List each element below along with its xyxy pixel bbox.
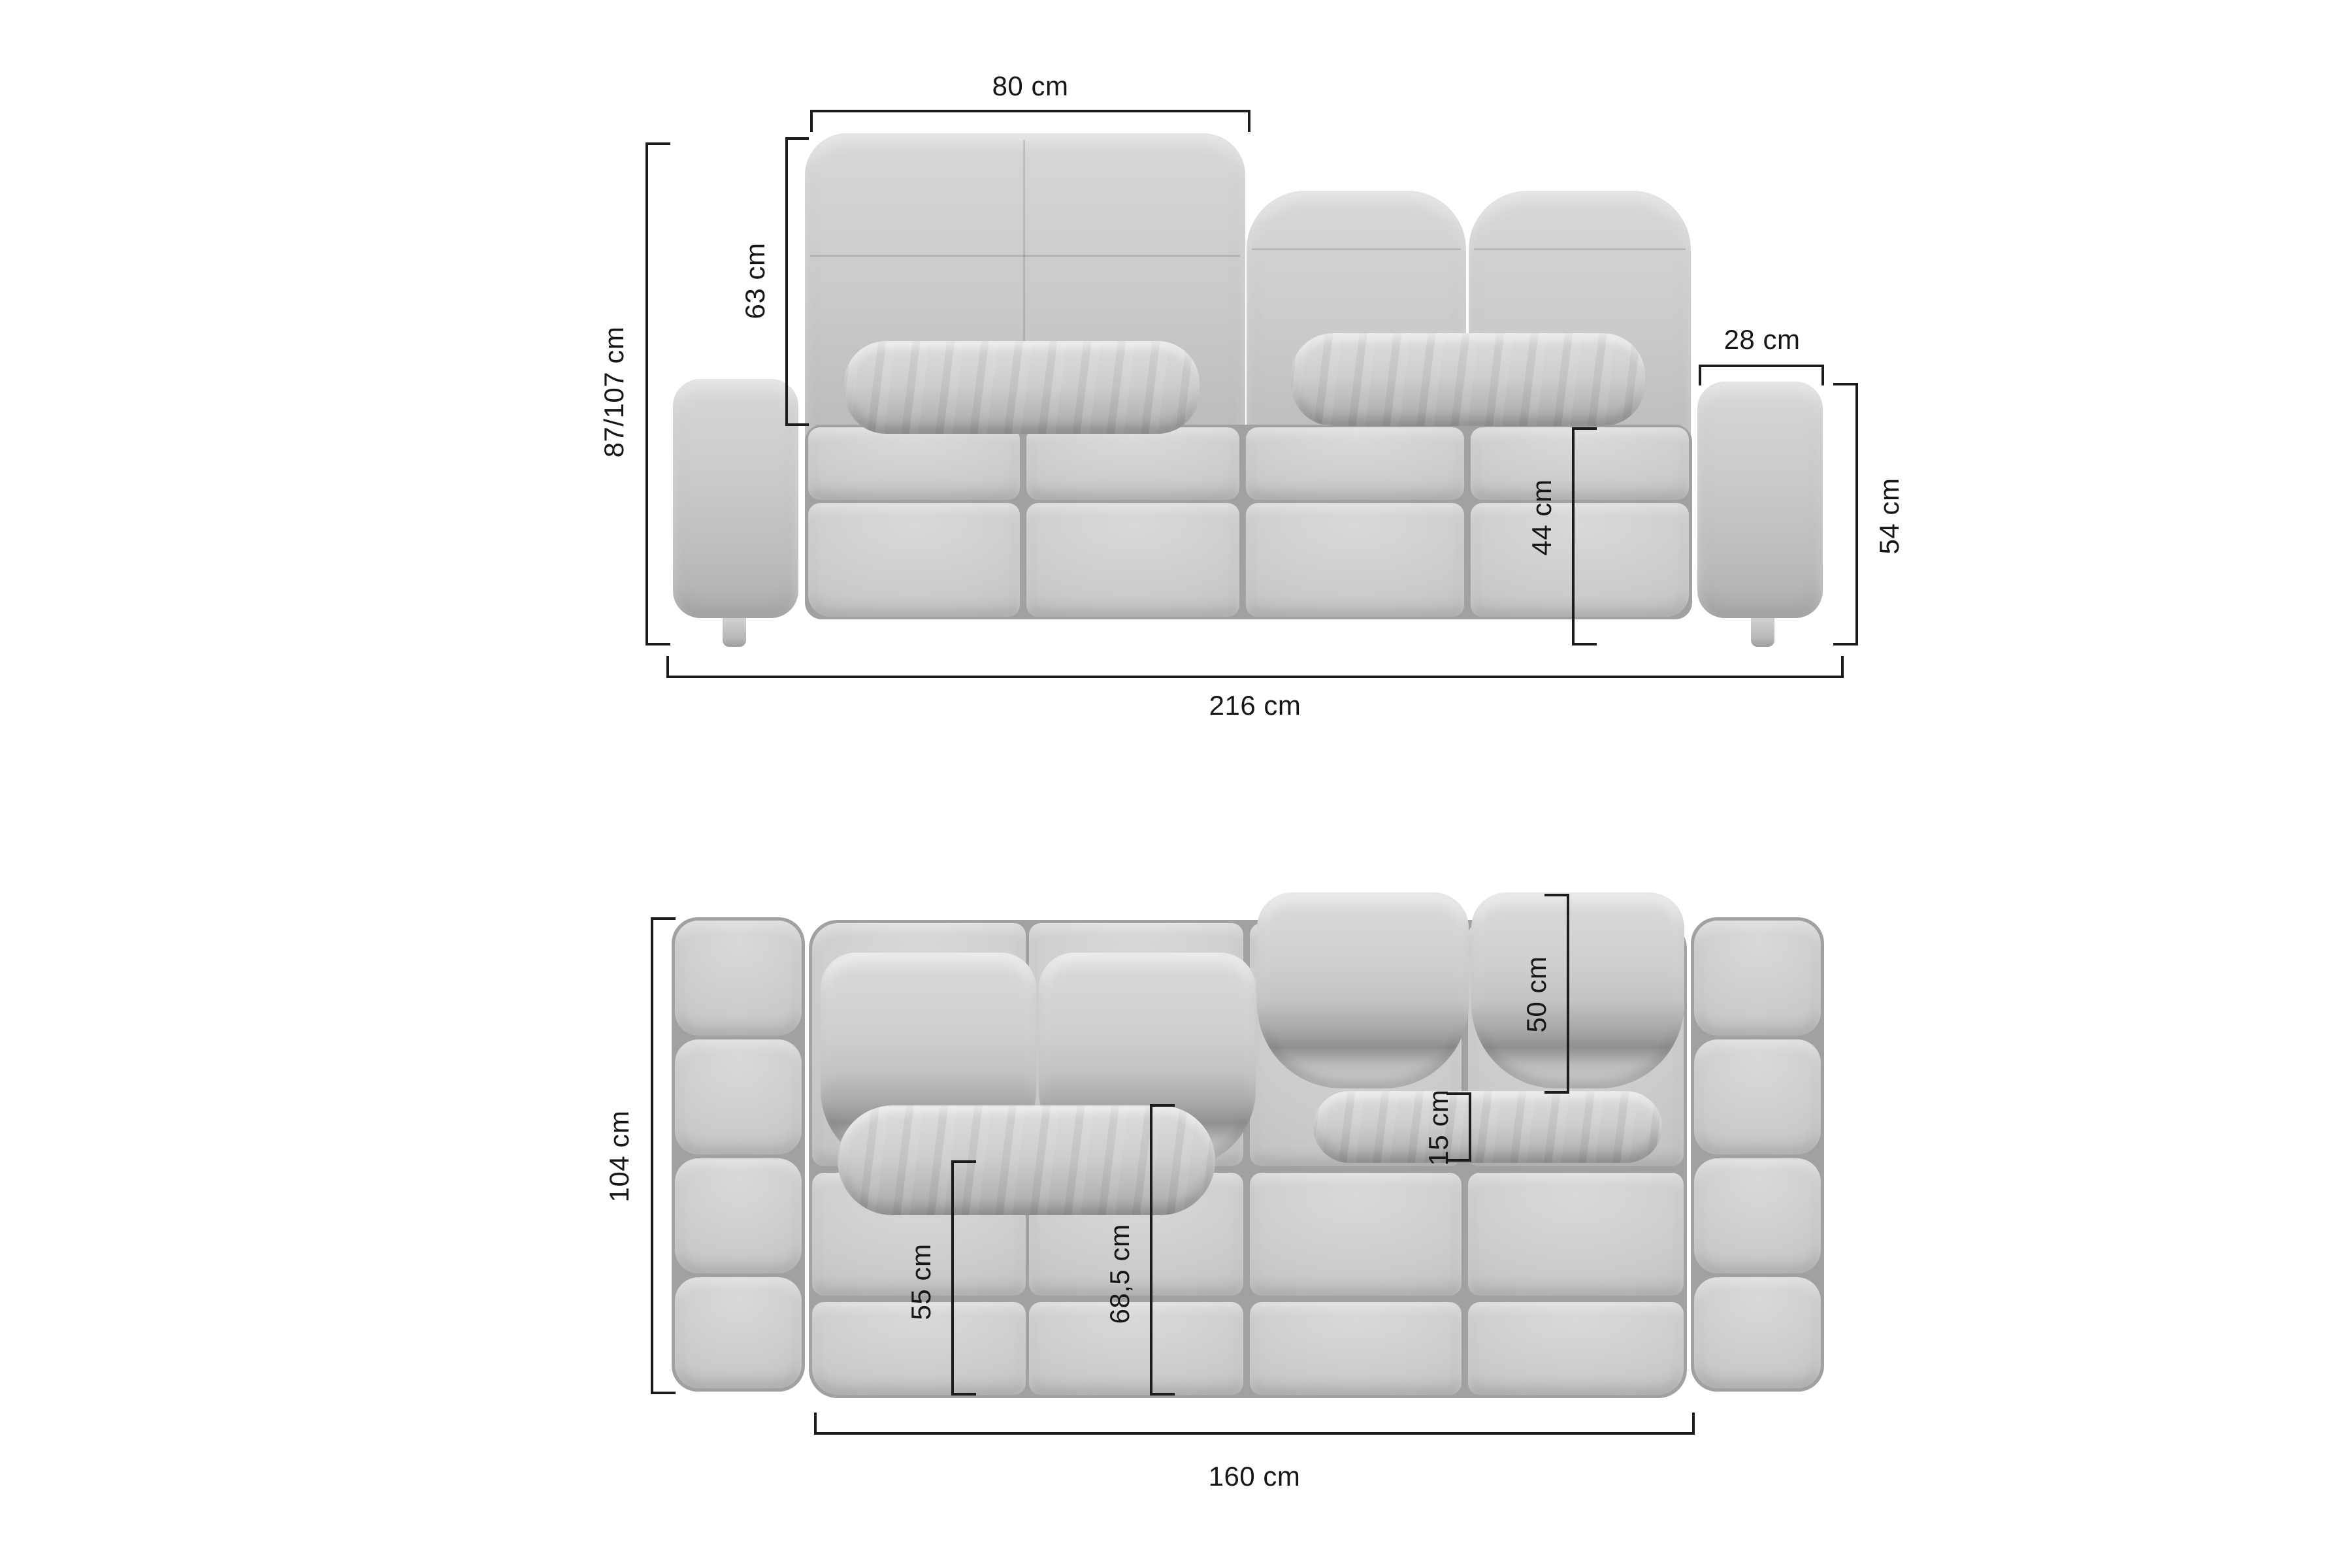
plan-armrest-right-cell <box>1694 1277 1821 1388</box>
backrest-right-seam-1 <box>1252 248 1461 250</box>
plan-seat-cell <box>1468 1302 1684 1395</box>
dimension-label: 44 cm <box>1526 480 1558 556</box>
plan-lumbar-pillow-left <box>838 1105 1215 1215</box>
dimension-label: 80 cm <box>992 71 1069 102</box>
dimension-label: 63 cm <box>740 243 771 319</box>
front-seat-cell <box>1246 427 1464 500</box>
front-armrest-right <box>1697 382 1823 618</box>
plan-armrest-right-cell <box>1694 921 1821 1036</box>
front-view: 80 cm 63 cm 87/107 cm 28 cm 44 cm <box>0 0 2352 784</box>
plan-lumbar-pillow-right <box>1313 1091 1662 1163</box>
plan-armrest-left-cell <box>675 921 802 1036</box>
top-view: 104 cm 50 cm 15 cm 55 cm 68,5 cm <box>0 784 2352 1568</box>
front-right-leg <box>1751 617 1774 647</box>
plan-seat-cell <box>1468 1173 1684 1296</box>
front-seat-cell <box>1026 427 1239 500</box>
backrest-right-seam-2 <box>1474 248 1686 250</box>
dimension-label: 55 cm <box>906 1244 937 1320</box>
plan-armrest-left-cell <box>675 1277 802 1388</box>
plan-seat-cell <box>1250 1173 1462 1296</box>
dimension-label: 87/107 cm <box>598 327 630 458</box>
front-seat-cell <box>808 427 1020 500</box>
dimension-label: 68,5 cm <box>1104 1224 1135 1324</box>
front-seat-cell <box>1471 503 1689 617</box>
dimension-label: 50 cm <box>1521 956 1552 1033</box>
plan-armrest-left-cell <box>675 1158 802 1273</box>
front-seat-cell <box>1246 503 1464 617</box>
plan-seat-cell <box>1029 1302 1243 1395</box>
dimension-label: 15 cm <box>1423 1090 1454 1166</box>
plan-armrest-left-cell <box>675 1039 802 1154</box>
front-seat-cell <box>808 503 1020 617</box>
front-seat-cell <box>1026 503 1239 617</box>
dimension-label: 54 cm <box>1874 478 1905 555</box>
dimension-label: 104 cm <box>604 1111 635 1203</box>
plan-armrest-right-cell <box>1694 1158 1821 1273</box>
dimension-label: 28 cm <box>1724 324 1801 355</box>
front-lumbar-pillow-right <box>1291 333 1645 426</box>
dimension-label: 216 cm <box>1209 690 1301 721</box>
front-seat-cell <box>1471 427 1689 500</box>
front-left-leg <box>723 617 746 647</box>
front-lumbar-pillow-left <box>844 341 1200 434</box>
plan-armrest-right-cell <box>1694 1039 1821 1154</box>
plan-seat-cell <box>1250 1302 1462 1395</box>
plan-headrest-right-1 <box>1257 892 1469 1088</box>
front-armrest-left <box>673 379 798 618</box>
diagram-canvas: 80 cm 63 cm 87/107 cm 28 cm 44 cm <box>0 0 2352 1568</box>
backrest-left-horizontal-seam <box>810 255 1240 257</box>
dimension-label: 160 cm <box>1209 1461 1301 1492</box>
plan-headrest-right-2 <box>1471 892 1684 1088</box>
